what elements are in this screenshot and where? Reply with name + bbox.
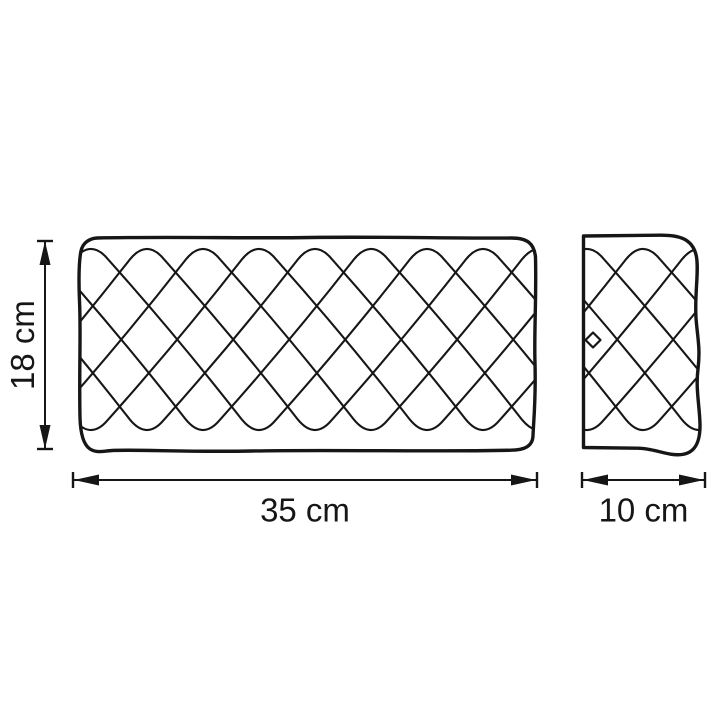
height-dimension: 18 cm xyxy=(4,241,53,449)
height-dimension-label: 18 cm xyxy=(4,300,41,390)
width-dimension-label: 35 cm xyxy=(260,492,350,529)
arrow-right-icon xyxy=(511,475,536,486)
arrow-down-icon xyxy=(40,425,51,449)
front-view-outline xyxy=(79,237,536,451)
width-dimension: 35 cm xyxy=(73,472,537,529)
arrow-right-icon xyxy=(679,475,704,486)
depth-dimension: 10 cm xyxy=(582,472,705,529)
wall-lamp-dimension-diagram: 18 cm 35 cm 10 cm xyxy=(0,0,720,720)
side-view-quilt-pattern xyxy=(0,249,720,440)
technical-drawing-canvas: 18 cm 35 cm 10 cm xyxy=(0,0,720,720)
arrow-up-icon xyxy=(40,241,51,265)
quilt-button-icon xyxy=(586,333,601,348)
depth-dimension-label: 10 cm xyxy=(599,492,689,529)
arrow-left-icon xyxy=(74,475,99,486)
arrow-left-icon xyxy=(583,475,608,486)
